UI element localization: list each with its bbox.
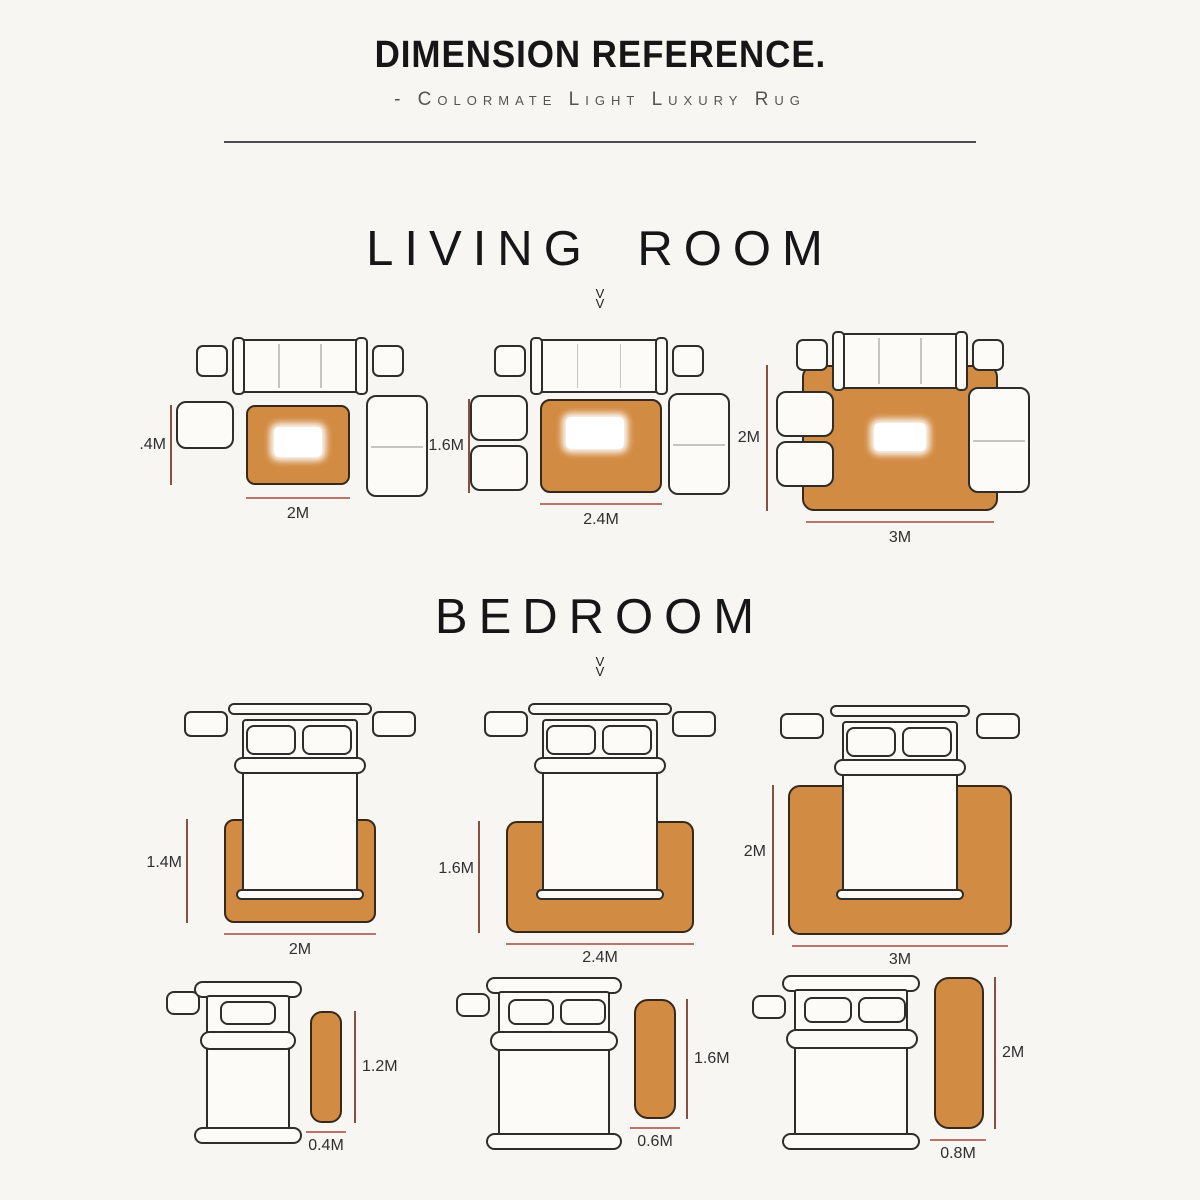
width-dimension-line <box>246 497 350 499</box>
pillow <box>546 725 596 755</box>
pillow <box>804 997 852 1023</box>
divider-line <box>224 141 976 143</box>
height-dimension-line <box>354 1011 356 1123</box>
side-table <box>494 345 526 377</box>
pillow <box>246 725 296 755</box>
section-title-bedroom: BEDROOM <box>0 589 1200 645</box>
sofa <box>234 339 366 393</box>
sofa-armrest <box>832 331 845 391</box>
sofa-armrest <box>955 331 968 391</box>
bedroom-runner-rug-row: 1.2M 0.4M 1.6M 0.6M <box>0 965 1200 1165</box>
rug-width-label: 2.4M <box>506 949 694 967</box>
bed-foot-bar <box>536 889 664 900</box>
sofa-seat-divider <box>878 338 880 384</box>
nightstand <box>456 993 490 1017</box>
living-room-layouts-row: .4M 2M 1.6M 2.4M <box>0 331 1200 555</box>
rug-width-label: 0.4M <box>296 1137 356 1155</box>
nightstand <box>672 711 716 737</box>
sofa-seat-divider <box>920 338 922 384</box>
rug-width-label: 2M <box>246 505 350 523</box>
dimension-reference-infographic: DIMENSION REFERENCE. - Colormate Light L… <box>0 0 1200 1165</box>
nightstand <box>184 711 228 737</box>
width-dimension-line <box>792 945 1008 947</box>
width-dimension-line <box>630 1127 680 1129</box>
side-table <box>796 339 828 371</box>
bed-blanket-edge <box>490 1031 618 1051</box>
bed-foot-bar <box>486 1133 622 1150</box>
rug-width-label: 3M <box>806 529 994 547</box>
pillow <box>846 727 896 757</box>
pillow <box>220 1001 276 1025</box>
rug-width-label: 3M <box>792 951 1008 969</box>
chevron-down-icon: V V <box>0 289 1200 309</box>
pillow <box>302 725 352 755</box>
bedroom-layout-medium: 1.6M 2.4M <box>450 699 750 965</box>
bedroom-layout-large: 2M 3M <box>750 699 1050 965</box>
living-room-layout-medium: 1.6M 2.4M <box>450 331 750 555</box>
side-table <box>196 345 228 377</box>
sofa-armrest <box>655 337 668 395</box>
rug-height-label: .4M <box>126 436 166 454</box>
runner-rug <box>634 999 676 1119</box>
bed-foot-bar <box>236 889 364 900</box>
bedside-runner-layout-large: 2M 0.8M <box>750 965 1050 1165</box>
height-dimension-line <box>170 405 172 485</box>
armchair <box>470 445 528 491</box>
width-dimension-line <box>540 503 662 505</box>
width-dimension-line <box>224 933 376 935</box>
bedroom-large-rug-row: 1.4M 2M 1.6M 2.4M <box>0 699 1200 965</box>
armchair <box>776 441 834 487</box>
side-table <box>972 339 1004 371</box>
coffee-table <box>874 423 926 451</box>
pillow <box>560 999 606 1025</box>
bedside-runner-layout-medium: 1.6M 0.6M <box>450 965 750 1165</box>
rug-width-label: 2M <box>224 941 376 959</box>
pillow <box>858 997 906 1023</box>
sofa-armrest <box>355 337 368 395</box>
nightstand <box>752 995 786 1019</box>
armchair <box>176 401 234 449</box>
runner-rug <box>310 1011 342 1123</box>
rug-height-label: 1.4M <box>140 854 182 872</box>
loveseat <box>366 395 428 497</box>
rug-width-label: 2.4M <box>540 511 662 529</box>
nightstand <box>780 713 824 739</box>
sofa <box>834 333 966 389</box>
sofa-seat-divider <box>278 344 280 388</box>
page-subtitle: - Colormate Light Luxury Rug <box>0 89 1200 111</box>
nightstand <box>484 711 528 737</box>
sofa <box>532 339 666 393</box>
loveseat-divider <box>673 444 725 446</box>
pillow <box>602 725 652 755</box>
side-table <box>672 345 704 377</box>
height-dimension-line <box>686 999 688 1119</box>
height-dimension-line <box>766 365 768 511</box>
height-dimension-line <box>186 819 188 923</box>
living-room-layout-large: 2M 3M <box>750 331 1050 555</box>
height-dimension-line <box>994 977 996 1129</box>
bedside-runner-layout-small: 1.2M 0.4M <box>150 965 450 1165</box>
height-dimension-line <box>468 399 470 493</box>
sofa-seat-divider <box>577 344 579 388</box>
width-dimension-line <box>806 521 994 523</box>
bed-headboard <box>528 703 672 715</box>
nightstand <box>372 711 416 737</box>
sofa-seat-divider <box>620 344 622 388</box>
bed-headboard <box>228 703 372 715</box>
rug-height-label: 2M <box>734 843 766 861</box>
rug-height-label: 2M <box>730 429 760 447</box>
bed-foot-bar <box>782 1133 920 1150</box>
loveseat <box>668 393 730 495</box>
coffee-table <box>566 417 624 449</box>
pillow <box>508 999 554 1025</box>
armchair <box>776 391 834 437</box>
chevron-down-icon: V V <box>0 657 1200 677</box>
sofa-armrest <box>530 337 543 395</box>
rug-height-label: 1.2M <box>362 1058 398 1076</box>
runner-rug <box>934 977 984 1129</box>
coffee-table <box>274 427 322 457</box>
page-title: DIMENSION REFERENCE. <box>0 34 1200 77</box>
height-dimension-line <box>478 821 480 933</box>
armchair <box>470 395 528 441</box>
rug-height-label: 2M <box>1002 1044 1024 1062</box>
living-room-layout-small: .4M 2M <box>150 331 450 555</box>
bed-blanket-edge <box>534 757 666 774</box>
bed-blanket-edge <box>234 757 366 774</box>
bedroom-layout-small: 1.4M 2M <box>150 699 450 965</box>
nightstand <box>976 713 1020 739</box>
section-title-living-room: LIVING ROOM <box>0 221 1200 277</box>
rug-height-label: 1.6M <box>426 437 464 455</box>
bed-blanket-edge <box>200 1031 296 1050</box>
rug-height-label: 1.6M <box>432 860 474 878</box>
bed-headboard <box>830 705 970 717</box>
rug-width-label: 0.8M <box>920 1145 996 1163</box>
loveseat-divider <box>371 446 423 448</box>
pillow <box>902 727 952 757</box>
loveseat <box>968 387 1030 493</box>
loveseat-divider <box>973 440 1025 442</box>
width-dimension-line <box>306 1131 346 1133</box>
height-dimension-line <box>772 785 774 935</box>
sofa-seat-divider <box>320 344 322 388</box>
width-dimension-line <box>930 1139 986 1141</box>
side-table <box>372 345 404 377</box>
rug-height-label: 1.6M <box>694 1050 730 1068</box>
rug-width-label: 0.6M <box>620 1133 690 1151</box>
width-dimension-line <box>506 943 694 945</box>
sofa-armrest <box>232 337 245 395</box>
bed-foot-bar <box>194 1127 302 1144</box>
bed-blanket-edge <box>786 1029 918 1049</box>
bed-blanket-edge <box>834 759 966 776</box>
bed-foot-bar <box>836 889 964 900</box>
